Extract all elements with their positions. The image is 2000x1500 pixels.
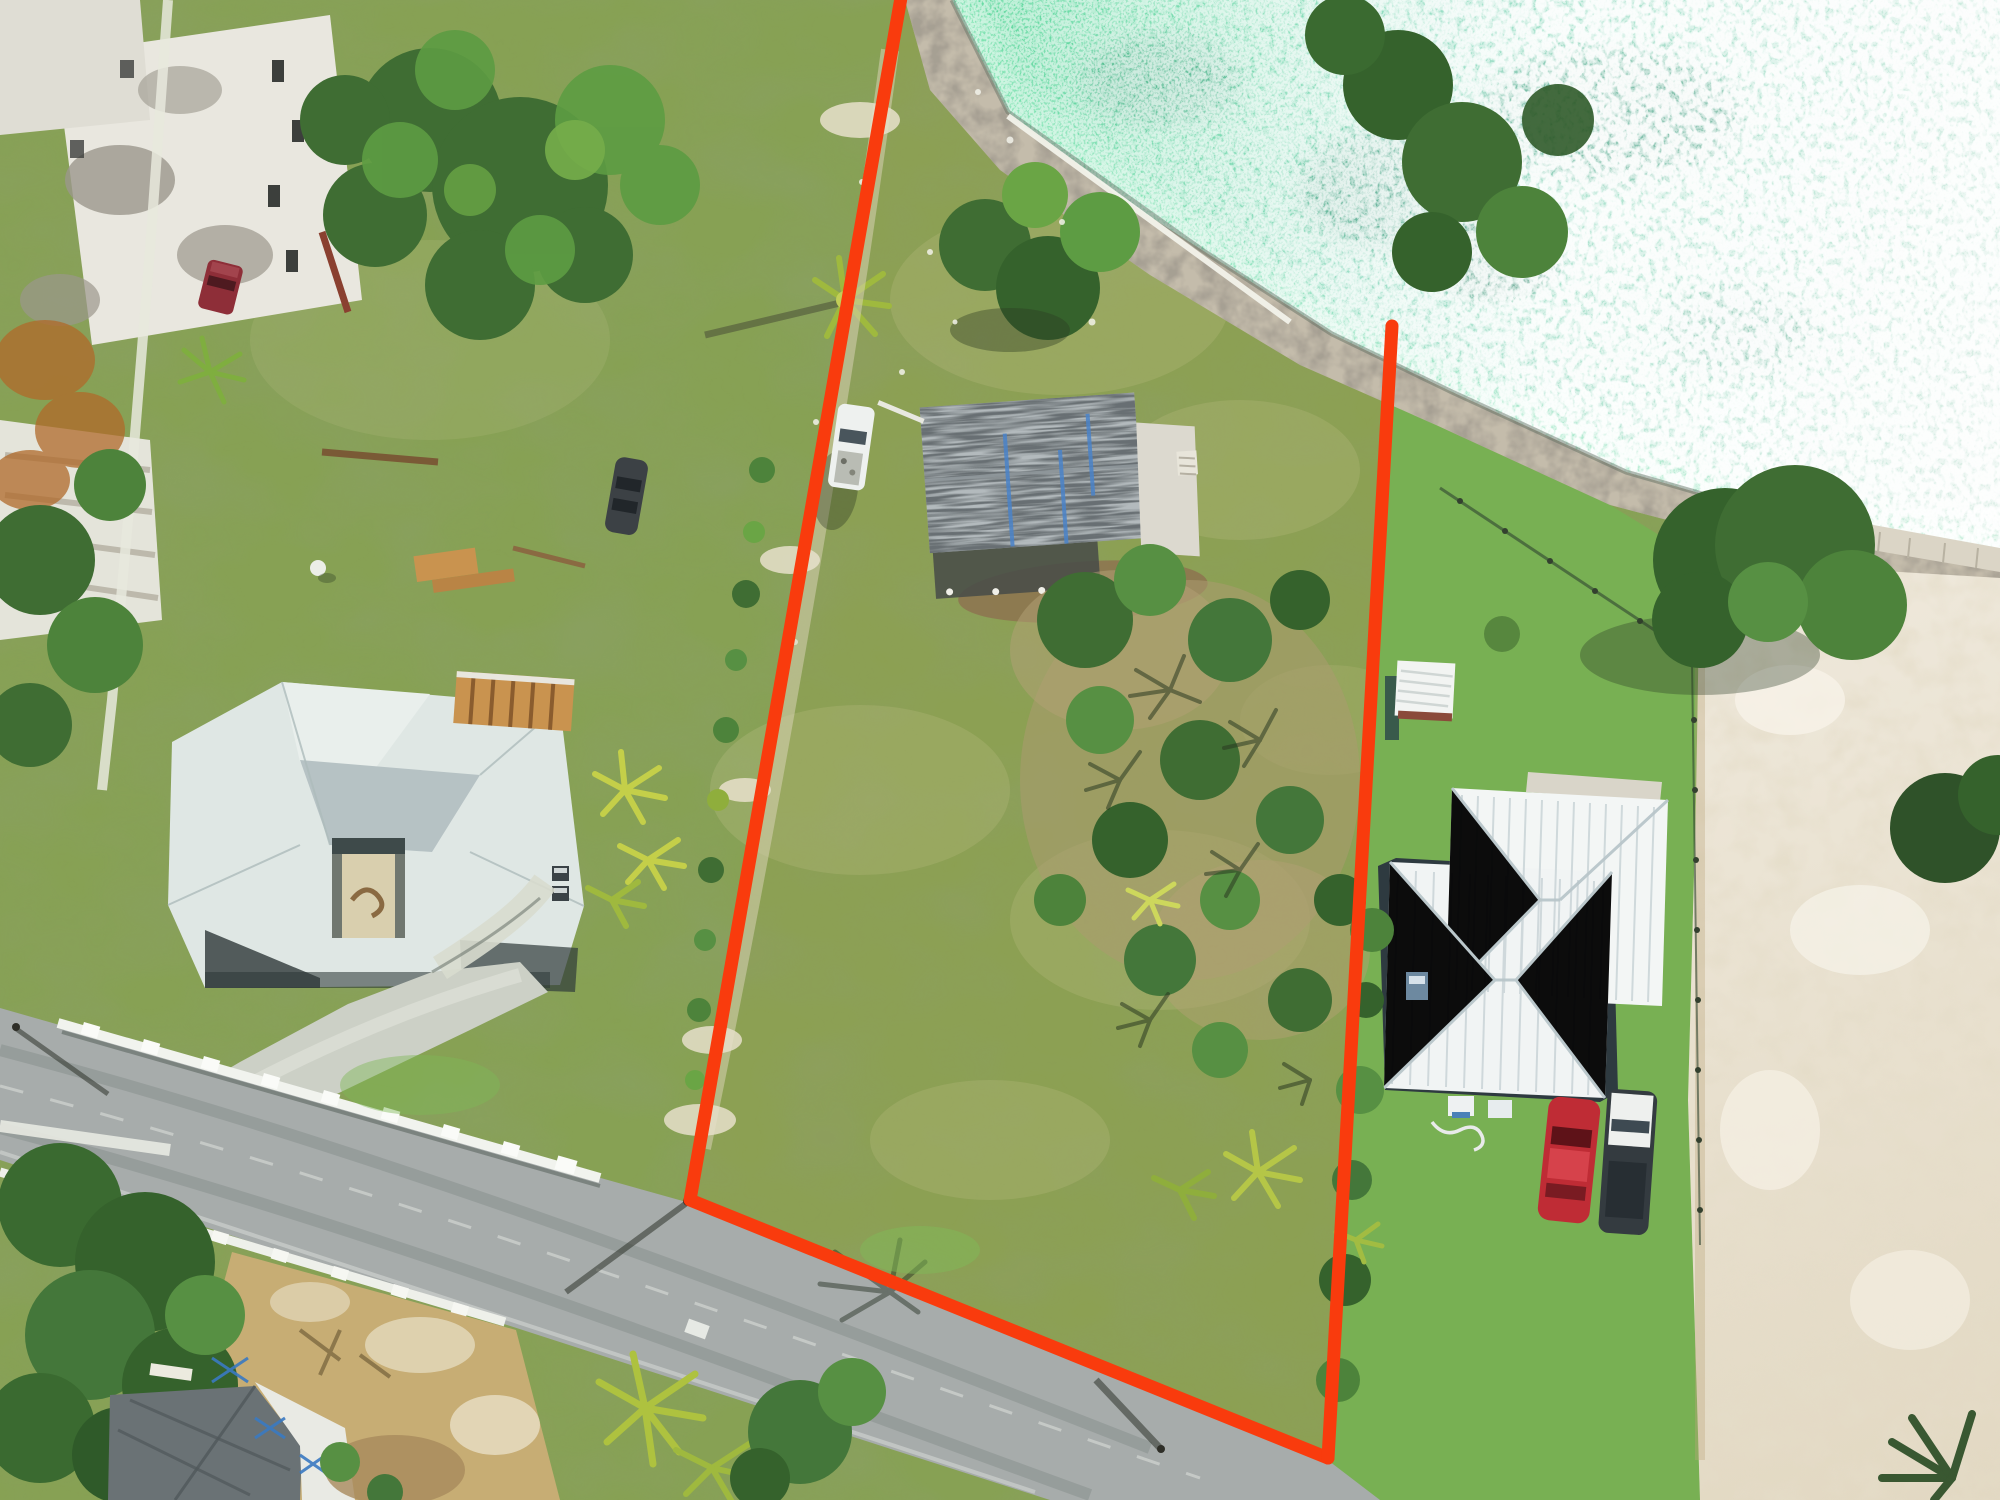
bright-verge xyxy=(860,1226,980,1274)
wood-deck-frame xyxy=(453,671,574,731)
aerial-photo xyxy=(0,0,2000,1500)
courtyard-header-shadow xyxy=(332,838,405,854)
aerial-photo-stage xyxy=(0,0,2000,1500)
lawn-dark-spot xyxy=(1484,616,1520,652)
patio-steps xyxy=(1176,450,1198,475)
side-patio xyxy=(1132,418,1203,560)
ac-unit xyxy=(1488,1100,1512,1118)
bright-verge xyxy=(340,1055,500,1115)
utility-pole xyxy=(12,1023,20,1031)
car-roof xyxy=(1547,1148,1590,1182)
utility-pole xyxy=(1157,1445,1165,1453)
truck-bed xyxy=(834,450,863,485)
tree-shadow xyxy=(950,308,1070,352)
left-house xyxy=(168,682,584,992)
suv-bed xyxy=(1605,1161,1647,1220)
white-suv xyxy=(1598,1088,1658,1235)
sand-area xyxy=(1688,560,2000,1500)
shrub xyxy=(818,1358,886,1426)
